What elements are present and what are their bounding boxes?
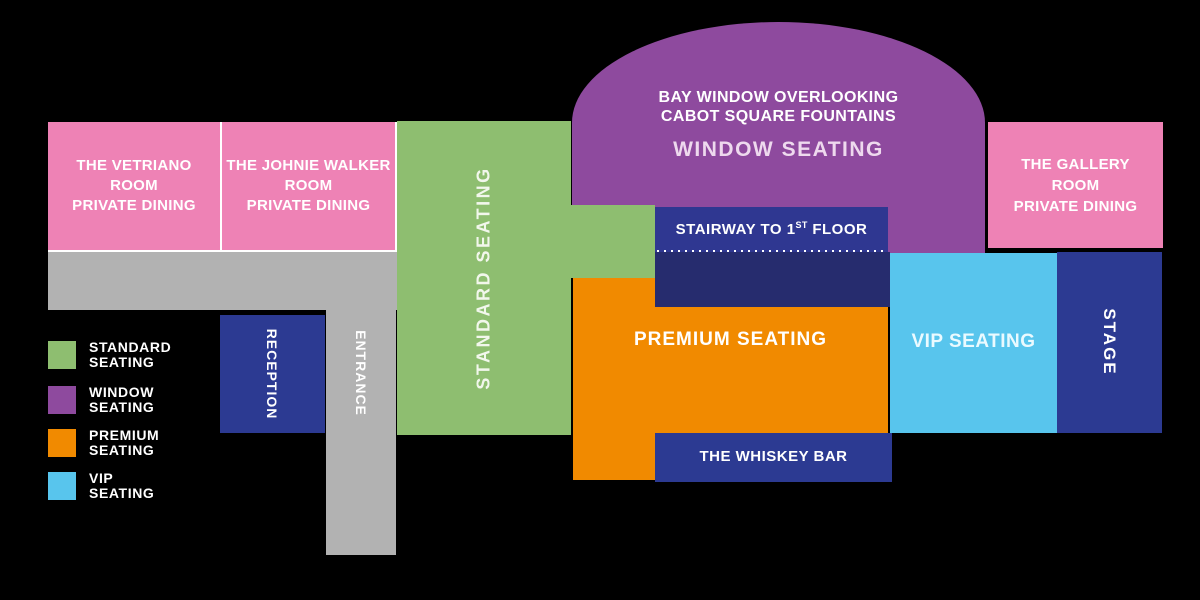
legend-swatch-standard (48, 341, 76, 369)
venue-floor-plan: THE VETRIANO ROOM PRIVATE DINING THE JOH… (0, 0, 1200, 600)
legend-label-vip: VIP SEATING (89, 471, 154, 501)
window-seating-description: BAY WINDOW OVERLOOKING CABOT SQUARE FOUN… (572, 88, 985, 126)
legend-label-standard-line2: SEATING (89, 355, 171, 370)
legend-swatch-premium (48, 429, 76, 457)
legend-label-premium-line1: PREMIUM (89, 428, 159, 443)
room-vetriano-line2: ROOM (110, 176, 158, 196)
reception-label: RECEPTION (264, 329, 280, 420)
room-vetriano: THE VETRIANO ROOM PRIVATE DINING (48, 122, 220, 250)
legend-label-standard: STANDARD SEATING (89, 340, 171, 370)
window-seating-label: WINDOW SEATING (572, 138, 985, 162)
legend-item-standard-seating: STANDARD SEATING (48, 340, 171, 370)
legend-label-standard-line1: STANDARD (89, 340, 171, 355)
legend-item-vip-seating: VIP SEATING (48, 471, 154, 501)
stage-label: STAGE (1099, 308, 1119, 375)
stairway-label-superscript: ST (796, 220, 808, 230)
region-premium-seating-left (573, 278, 655, 480)
legend-label-vip-line2: SEATING (89, 486, 154, 501)
region-premium-seating (655, 307, 888, 433)
room-vetriano-line3: PRIVATE DINING (72, 196, 196, 216)
room-johnie-walker-line3: PRIVATE DINING (247, 196, 371, 216)
legend-swatch-window (48, 386, 76, 414)
vip-seating-label: VIP SEATING (890, 331, 1057, 353)
stairway-label-suffix: FLOOR (808, 221, 868, 238)
room-johnie-walker: THE JOHNIE WALKER ROOM PRIVATE DINING (222, 122, 395, 250)
room-johnie-walker-line1: THE JOHNIE WALKER (226, 156, 390, 176)
entrance-label: ENTRANCE (353, 330, 369, 416)
legend-label-vip-line1: VIP (89, 471, 154, 486)
window-seating-description-line2: CABOT SQUARE FOUNTAINS (572, 107, 985, 126)
premium-seating-label: PREMIUM SEATING (573, 329, 888, 351)
room-gallery-line2: ROOM (1052, 175, 1100, 196)
region-standard-seating-extension (571, 205, 655, 278)
legend-label-window-line2: SEATING (89, 400, 154, 415)
legend-label-window: WINDOW SEATING (89, 385, 154, 415)
legend-label-premium-line2: SEATING (89, 443, 159, 458)
legend-item-window-seating: WINDOW SEATING (48, 385, 154, 415)
room-gallery-line3: PRIVATE DINING (1014, 196, 1138, 217)
standard-seating-label: STANDARD SEATING (474, 166, 495, 389)
legend-item-premium-seating: PREMIUM SEATING (48, 428, 159, 458)
room-vetriano-line1: THE VETRIANO (76, 156, 191, 176)
legend-swatch-vip (48, 472, 76, 500)
legend-label-premium: PREMIUM SEATING (89, 428, 159, 458)
stairway-dotted-divider (657, 250, 886, 252)
room-gallery: THE GALLERY ROOM PRIVATE DINING (988, 122, 1163, 248)
stairway-label-prefix: STAIRWAY TO 1 (676, 221, 796, 238)
private-dining-rooms: THE VETRIANO ROOM PRIVATE DINING THE JOH… (48, 122, 397, 252)
window-seating-description-line1: BAY WINDOW OVERLOOKING (572, 88, 985, 107)
region-stairway-landing (655, 252, 890, 307)
room-johnie-walker-line2: ROOM (285, 176, 333, 196)
stairway-label: STAIRWAY TO 1ST FLOOR (655, 220, 888, 238)
whiskey-bar-label: THE WHISKEY BAR (655, 448, 892, 465)
room-gallery-line1: THE GALLERY (1021, 154, 1130, 175)
legend-label-window-line1: WINDOW (89, 385, 154, 400)
